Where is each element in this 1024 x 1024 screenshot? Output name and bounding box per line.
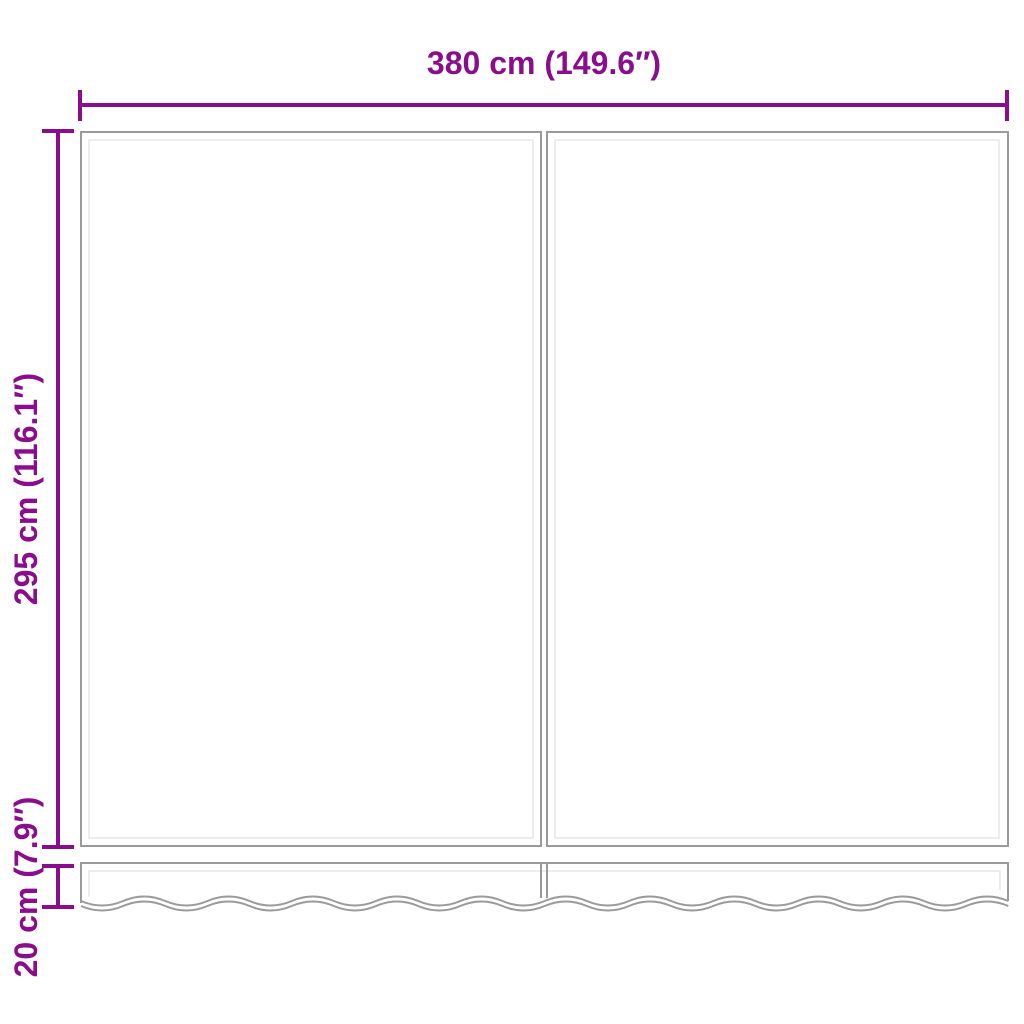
dimension-diagram: 380 cm (149.6″) 295 cm (116.1″) 20 cm (7… [0, 0, 1024, 1024]
fabric-panel-right [547, 132, 1008, 846]
scalloped-edge-lower [81, 902, 1008, 911]
panel-hem-left [89, 140, 533, 838]
valance-hem [89, 871, 1000, 897]
awning-fabric-drawing [0, 0, 1024, 1024]
valance-seam [541, 864, 547, 898]
scalloped-edge-upper [81, 897, 1008, 906]
fabric-panel-left [81, 132, 541, 846]
panel-hem-right [555, 140, 999, 838]
